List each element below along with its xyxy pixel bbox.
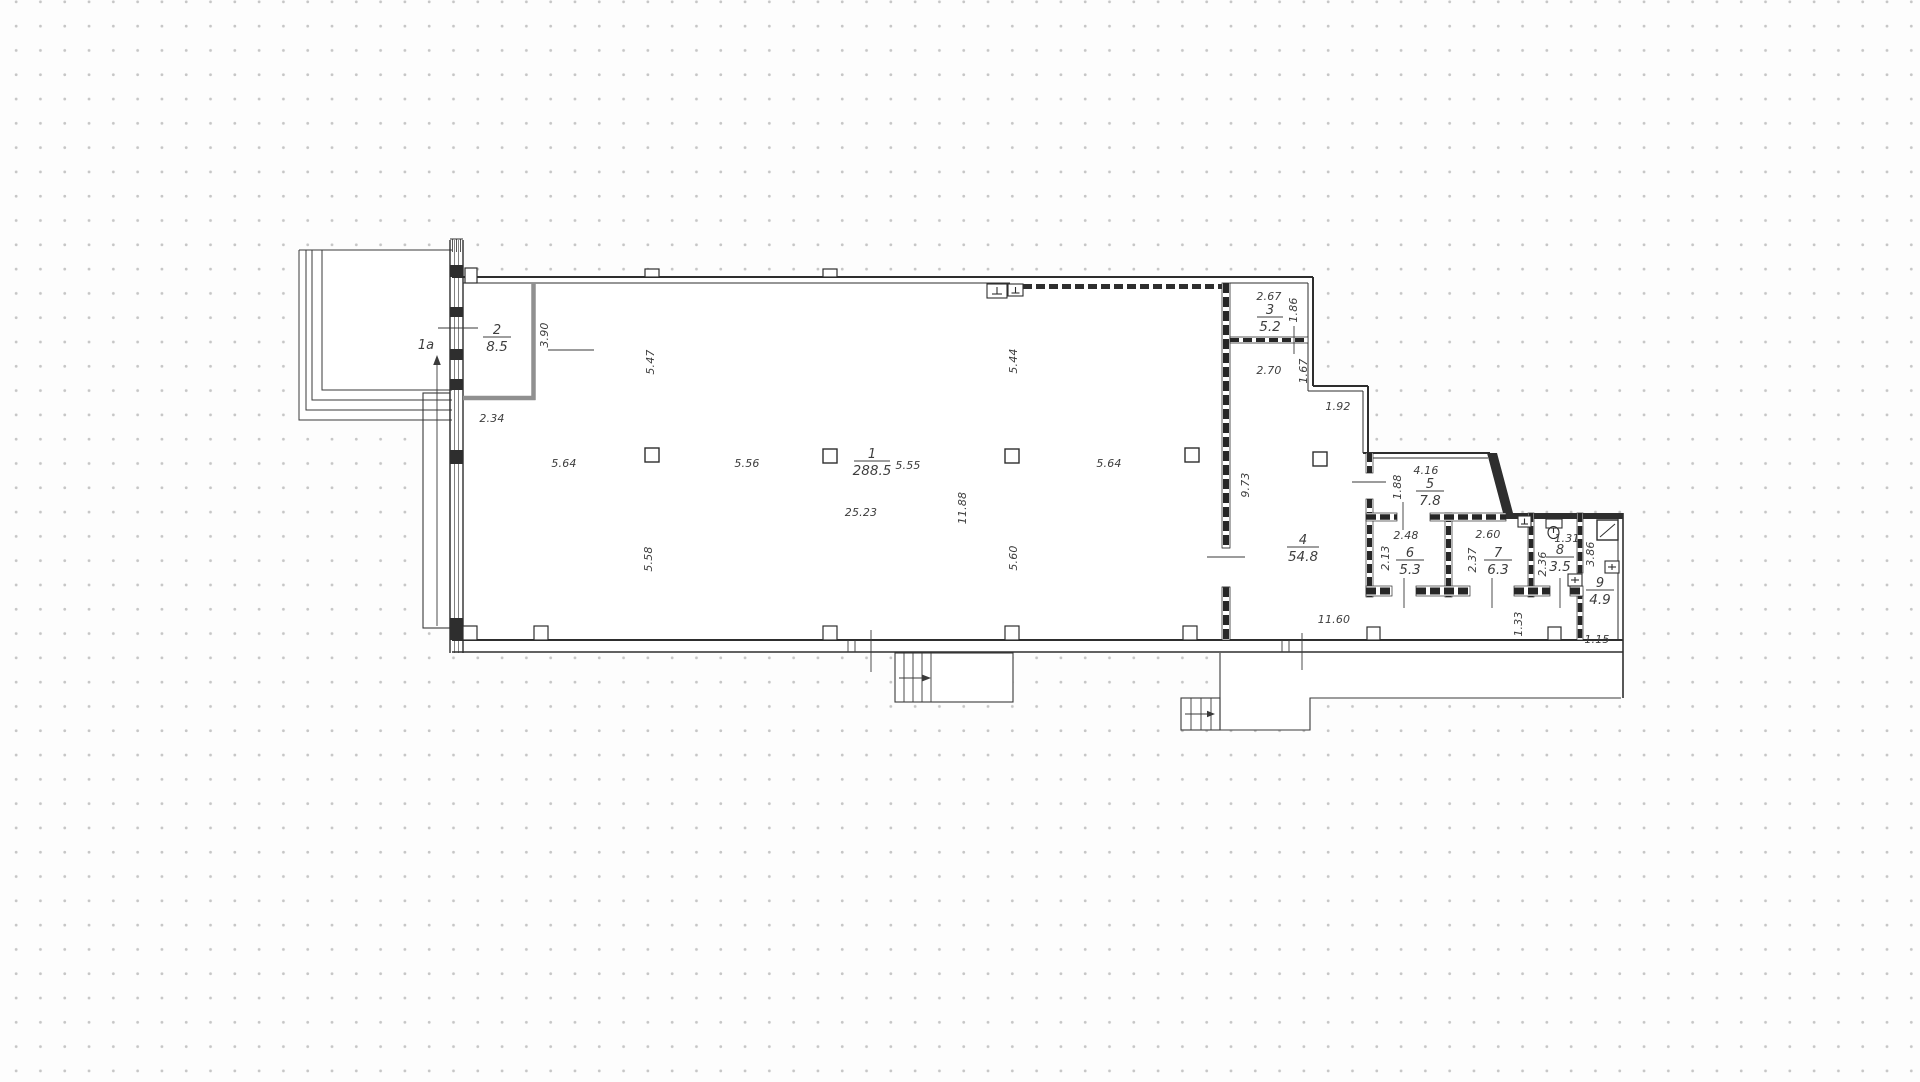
dim-room9-w: 1.15	[1584, 633, 1609, 646]
dim-bay-top-2: 5.56	[734, 457, 759, 470]
room-3-area: 5.2	[1259, 319, 1280, 335]
room-6-number: 6	[1406, 546, 1414, 561]
room-4-area: 54.8	[1288, 549, 1318, 565]
room-7-number: 7	[1494, 546, 1503, 561]
room-1-number: 1	[868, 447, 876, 462]
dim-room5-w: 4.16	[1413, 464, 1438, 477]
building-footprint	[299, 240, 1623, 730]
room-5-area: 7.8	[1419, 493, 1440, 509]
vent-duct-icon	[987, 284, 1023, 298]
dim-bay-top-4: 5.64	[1096, 457, 1121, 470]
dim-room7-h: 2.37	[1466, 547, 1479, 572]
door-fixture-icon	[1568, 574, 1582, 586]
dim-vest-h: 1.67	[1297, 358, 1310, 383]
room-8-area: 3.5	[1549, 559, 1570, 575]
vent-duct-icon	[1518, 516, 1531, 527]
room-4-number: 4	[1299, 533, 1307, 548]
dim-hall-depth: 11.88	[956, 492, 969, 525]
dim-room8-w: 1.31	[1554, 532, 1579, 545]
dim-corridor-len: 11.60	[1318, 613, 1351, 626]
dim-room2-h: 3.90	[538, 322, 551, 347]
dim-step-w: 1.92	[1325, 400, 1350, 413]
dim-room5-h: 1.88	[1391, 474, 1404, 499]
room-2-area: 8.5	[486, 339, 507, 355]
dim-room8-h: 2.36	[1536, 551, 1549, 576]
dim-hall-length: 25.23	[845, 506, 878, 519]
room-1-area: 288.5	[853, 463, 892, 479]
dim-col-top-1: 5.47	[644, 349, 657, 374]
dim-col-bot-1: 5.58	[642, 546, 655, 571]
dim-vest-w: 2.70	[1256, 364, 1281, 377]
dim-room9-h: 3.86	[1584, 541, 1597, 566]
dim-room4-h: 9.73	[1239, 472, 1252, 497]
floor-plan-drawing: 1 288.5 2 8.5 3 5.2 4 54.8 5 7.8 6 5.3 7…	[0, 0, 1920, 1078]
floor-plan-canvas: 1 288.5 2 8.5 3 5.2 4 54.8 5 7.8 6 5.3 7…	[0, 0, 1920, 1078]
zone-1a-label: 1a	[418, 338, 434, 353]
dim-col-top-2: 5.44	[1007, 348, 1020, 373]
dim-room2-w: 2.34	[479, 412, 504, 425]
room-5-number: 5	[1426, 477, 1434, 492]
dashed-partition-room3	[1230, 337, 1308, 343]
dim-room3-w: 2.67	[1256, 290, 1281, 303]
dim-room6-h: 2.13	[1379, 545, 1392, 570]
dim-room6-w: 2.48	[1393, 529, 1418, 542]
dim-room7-w: 2.60	[1475, 528, 1500, 541]
room-9-number: 9	[1596, 576, 1604, 591]
room-3-number: 3	[1266, 303, 1274, 318]
room-9-area: 4.9	[1589, 592, 1610, 608]
dim-room3-h: 1.86	[1287, 297, 1300, 322]
room-2-number: 2	[493, 323, 501, 338]
dim-bay-top-3: 5.55	[895, 459, 920, 472]
dim-bay-top-1: 5.64	[551, 457, 576, 470]
door-fixture-icon	[1605, 561, 1619, 573]
room-6-area: 5.3	[1399, 562, 1420, 578]
room-7-area: 6.3	[1487, 562, 1508, 578]
room-8-number: 8	[1556, 543, 1564, 558]
dim-corridor-w: 1.33	[1512, 611, 1525, 636]
dim-col-bot-2: 5.60	[1007, 545, 1020, 570]
